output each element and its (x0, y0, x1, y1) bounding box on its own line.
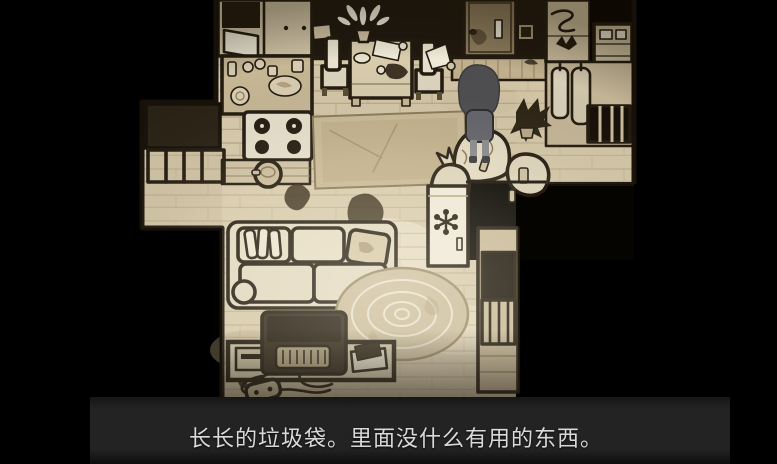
subtitle-bar[interactable]: 长长的垃圾袋。里面没什么有用的东西。 (90, 397, 730, 464)
game-viewport[interactable]: 长长的垃圾袋。里面没什么有用的东西。 (0, 0, 777, 464)
subtitle-text: 长长的垃圾袋。里面没什么有用的东西。 (189, 427, 603, 451)
scene-svg (0, 0, 777, 464)
